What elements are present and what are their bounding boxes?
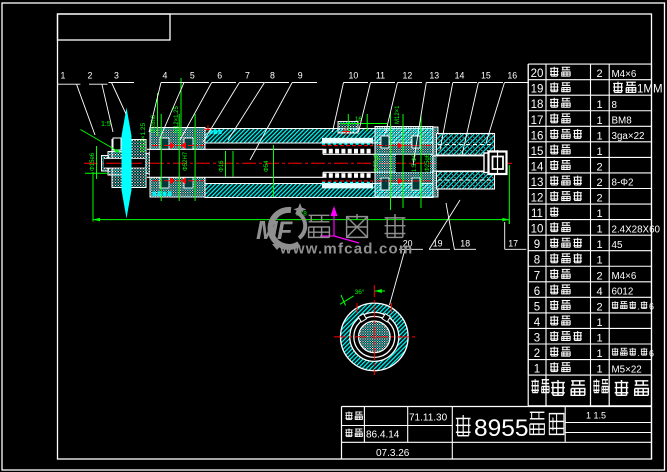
svg-text:16: 16	[507, 71, 517, 81]
svg-text:11: 11	[376, 71, 385, 81]
svg-text:13: 13	[429, 71, 439, 81]
svg-text:3ga×22: 3ga×22	[612, 131, 645, 142]
svg-text:8-Φ2: 8-Φ2	[612, 178, 634, 189]
svg-text:8: 8	[612, 100, 618, 111]
svg-text:17: 17	[508, 239, 518, 249]
svg-text:8955: 8955	[474, 415, 529, 442]
svg-text:M4×6: M4×6	[612, 69, 637, 80]
svg-text:4: 4	[163, 71, 168, 81]
svg-text:5: 5	[534, 301, 540, 313]
svg-text:1: 1	[596, 332, 602, 344]
svg-text:1: 1	[596, 317, 602, 329]
svg-text:16: 16	[531, 130, 544, 142]
svg-text:1: 1	[596, 255, 602, 267]
svg-text:20: 20	[531, 68, 544, 80]
svg-text:18: 18	[460, 239, 470, 249]
svg-text:1: 1	[596, 130, 602, 142]
svg-text:www.mfcad.com: www.mfcad.com	[279, 241, 413, 258]
svg-text:1: 1	[596, 146, 602, 158]
svg-text:1MM: 1MM	[637, 84, 663, 96]
svg-text:5: 5	[190, 71, 195, 81]
svg-text:12: 12	[403, 71, 413, 81]
svg-text:1: 1	[596, 115, 602, 127]
svg-text:M5×22: M5×22	[612, 364, 642, 375]
svg-text:18: 18	[531, 99, 544, 111]
svg-text:6: 6	[649, 302, 654, 312]
svg-text:10: 10	[349, 71, 359, 81]
svg-text:86.4.14: 86.4.14	[366, 430, 400, 441]
svg-text:14: 14	[531, 161, 544, 173]
svg-text:BM8: BM8	[612, 115, 633, 126]
svg-text:1: 1	[596, 348, 602, 360]
svg-text:19: 19	[433, 239, 443, 249]
svg-text:8: 8	[270, 71, 275, 81]
svg-text:7: 7	[534, 270, 540, 282]
svg-text:17: 17	[531, 115, 544, 127]
svg-text:1: 1	[596, 224, 602, 236]
svg-text:2: 2	[596, 270, 602, 282]
svg-text:M4×6: M4×6	[612, 271, 637, 282]
svg-text:6: 6	[217, 71, 222, 81]
svg-text:7: 7	[245, 71, 250, 81]
svg-text:6: 6	[534, 286, 540, 298]
svg-text:1: 1	[534, 364, 540, 376]
svg-text:.: .	[638, 348, 640, 358]
svg-text:Φ15e6: Φ15e6	[90, 152, 96, 171]
svg-text:2: 2	[596, 193, 602, 205]
svg-text:14: 14	[455, 71, 465, 81]
svg-text:10: 10	[531, 224, 544, 236]
svg-text:4: 4	[534, 317, 541, 329]
svg-text:15: 15	[531, 146, 544, 158]
svg-text:M: M	[256, 215, 279, 245]
svg-text:2.4X28X60: 2.4X28X60	[612, 224, 661, 235]
svg-text:8: 8	[534, 255, 540, 267]
svg-text:M12×1.25: M12×1.25	[140, 123, 147, 152]
svg-text:71.11.30: 71.11.30	[409, 413, 448, 424]
svg-text:Φ25g6: Φ25g6	[374, 153, 380, 172]
svg-text:2: 2	[596, 161, 602, 173]
svg-text:Φ52H7: Φ52H7	[183, 151, 189, 171]
svg-text:13: 13	[531, 177, 544, 189]
svg-text:07.3.26: 07.3.26	[376, 448, 410, 459]
svg-text:1 1.5: 1 1.5	[586, 411, 606, 421]
svg-text:Φ54: Φ54	[264, 160, 270, 172]
svg-text:Φ28h6: Φ28h6	[151, 114, 157, 133]
svg-text:6: 6	[649, 348, 654, 358]
svg-text:1: 1	[596, 99, 602, 111]
svg-text:11: 11	[531, 208, 543, 220]
svg-text:1: 1	[596, 239, 602, 251]
svg-text:1: 1	[596, 364, 602, 376]
svg-text:.: .	[638, 301, 640, 311]
svg-text:1: 1	[596, 208, 602, 220]
svg-text:Φ16: Φ16	[219, 160, 225, 172]
svg-text:36°: 36°	[355, 288, 365, 296]
svg-text:12: 12	[531, 193, 544, 205]
svg-text:2: 2	[88, 71, 93, 81]
svg-text:6012: 6012	[612, 287, 634, 298]
svg-text:2: 2	[596, 68, 602, 80]
svg-text:3: 3	[114, 71, 119, 81]
svg-text:9: 9	[534, 239, 540, 251]
svg-text:3: 3	[534, 332, 540, 344]
svg-text:9: 9	[298, 71, 303, 81]
svg-text:M12×1: M12×1	[395, 105, 401, 124]
svg-text:45: 45	[612, 240, 623, 251]
svg-text:2: 2	[596, 301, 602, 313]
svg-text:2: 2	[596, 177, 602, 189]
svg-text:1:5: 1:5	[101, 121, 111, 128]
svg-text:4: 4	[596, 286, 602, 298]
svg-text:19: 19	[531, 84, 544, 96]
svg-text:2: 2	[534, 348, 540, 360]
svg-text:Φ25g6: Φ25g6	[425, 153, 431, 172]
svg-text:15: 15	[481, 71, 491, 81]
svg-text:1: 1	[61, 71, 66, 81]
